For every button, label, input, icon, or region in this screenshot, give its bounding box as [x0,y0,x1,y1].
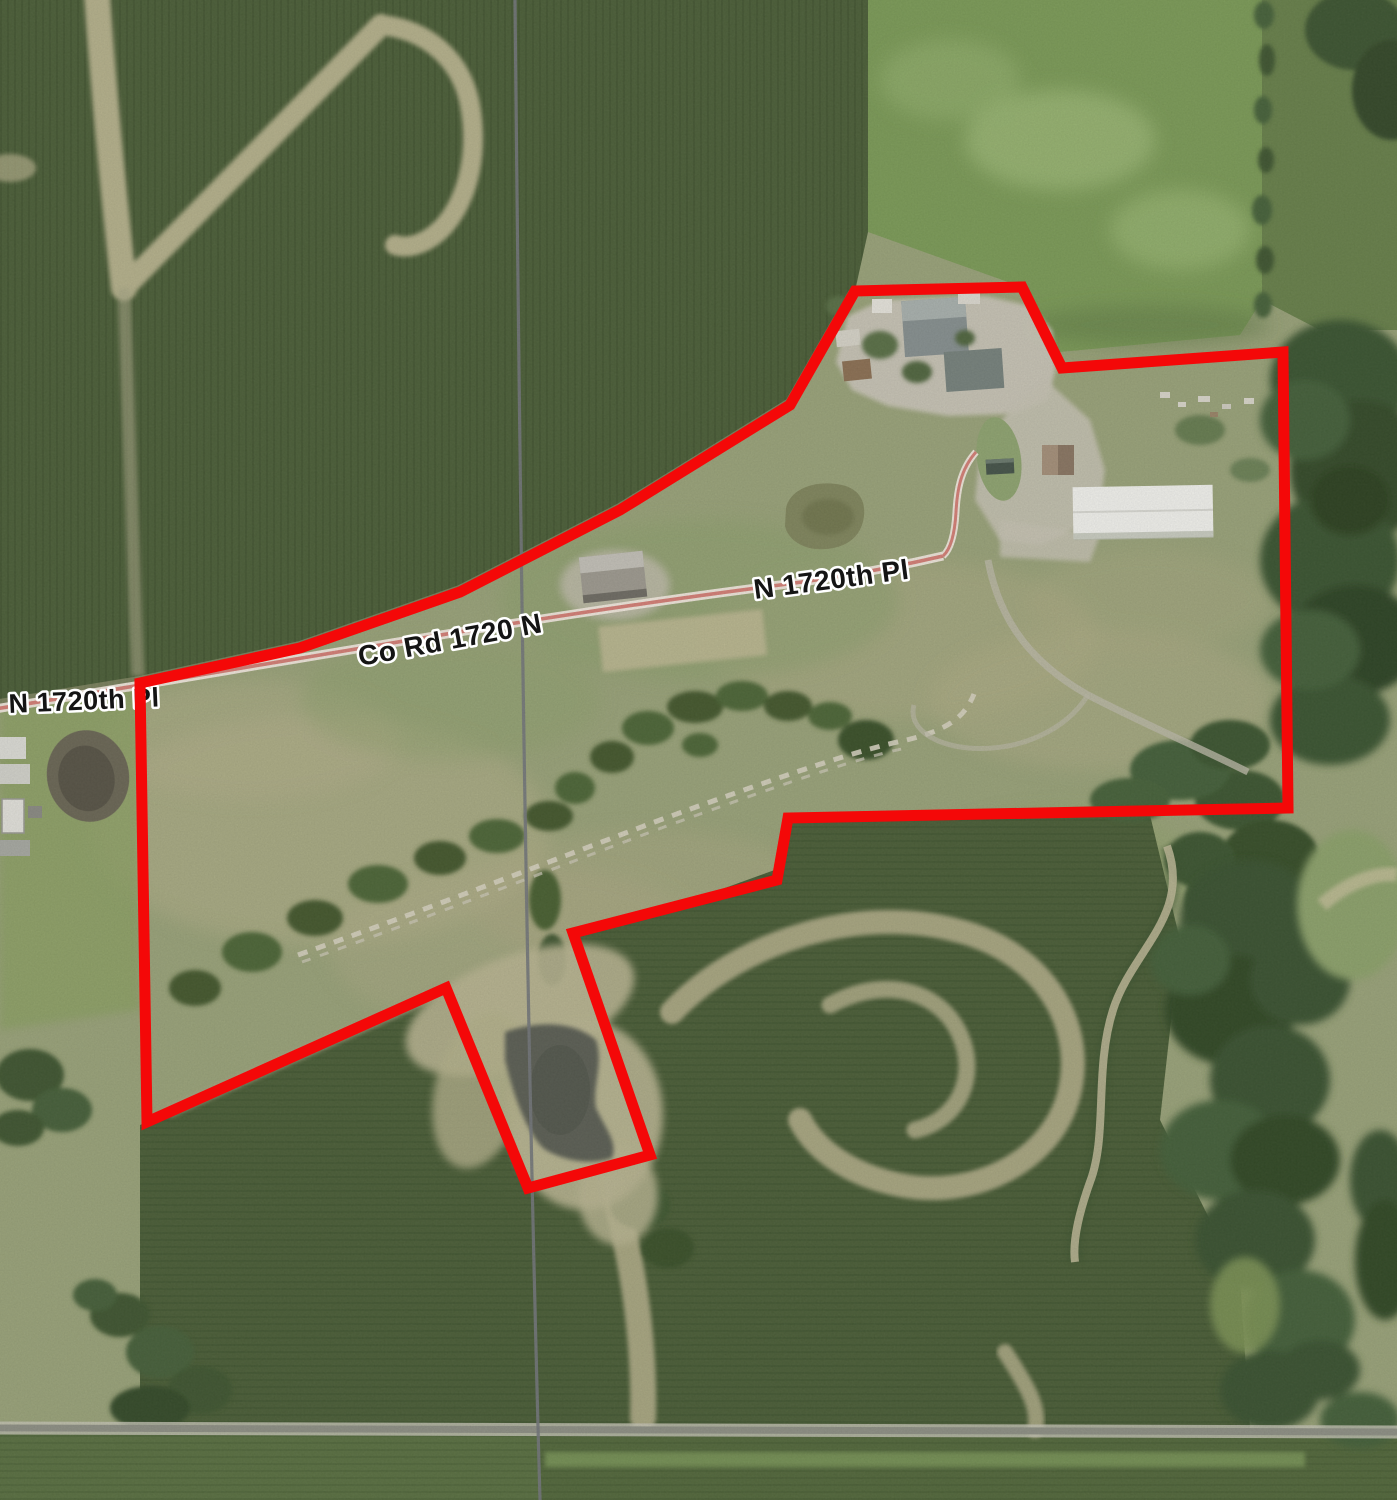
grain-overlay-light [0,0,1397,1500]
aerial-parcel-map[interactable]: N 1720th Pl Co Rd 1720 N N 1720th Pl [0,0,1397,1500]
map-canvas: N 1720th Pl Co Rd 1720 N N 1720th Pl [0,0,1397,1500]
